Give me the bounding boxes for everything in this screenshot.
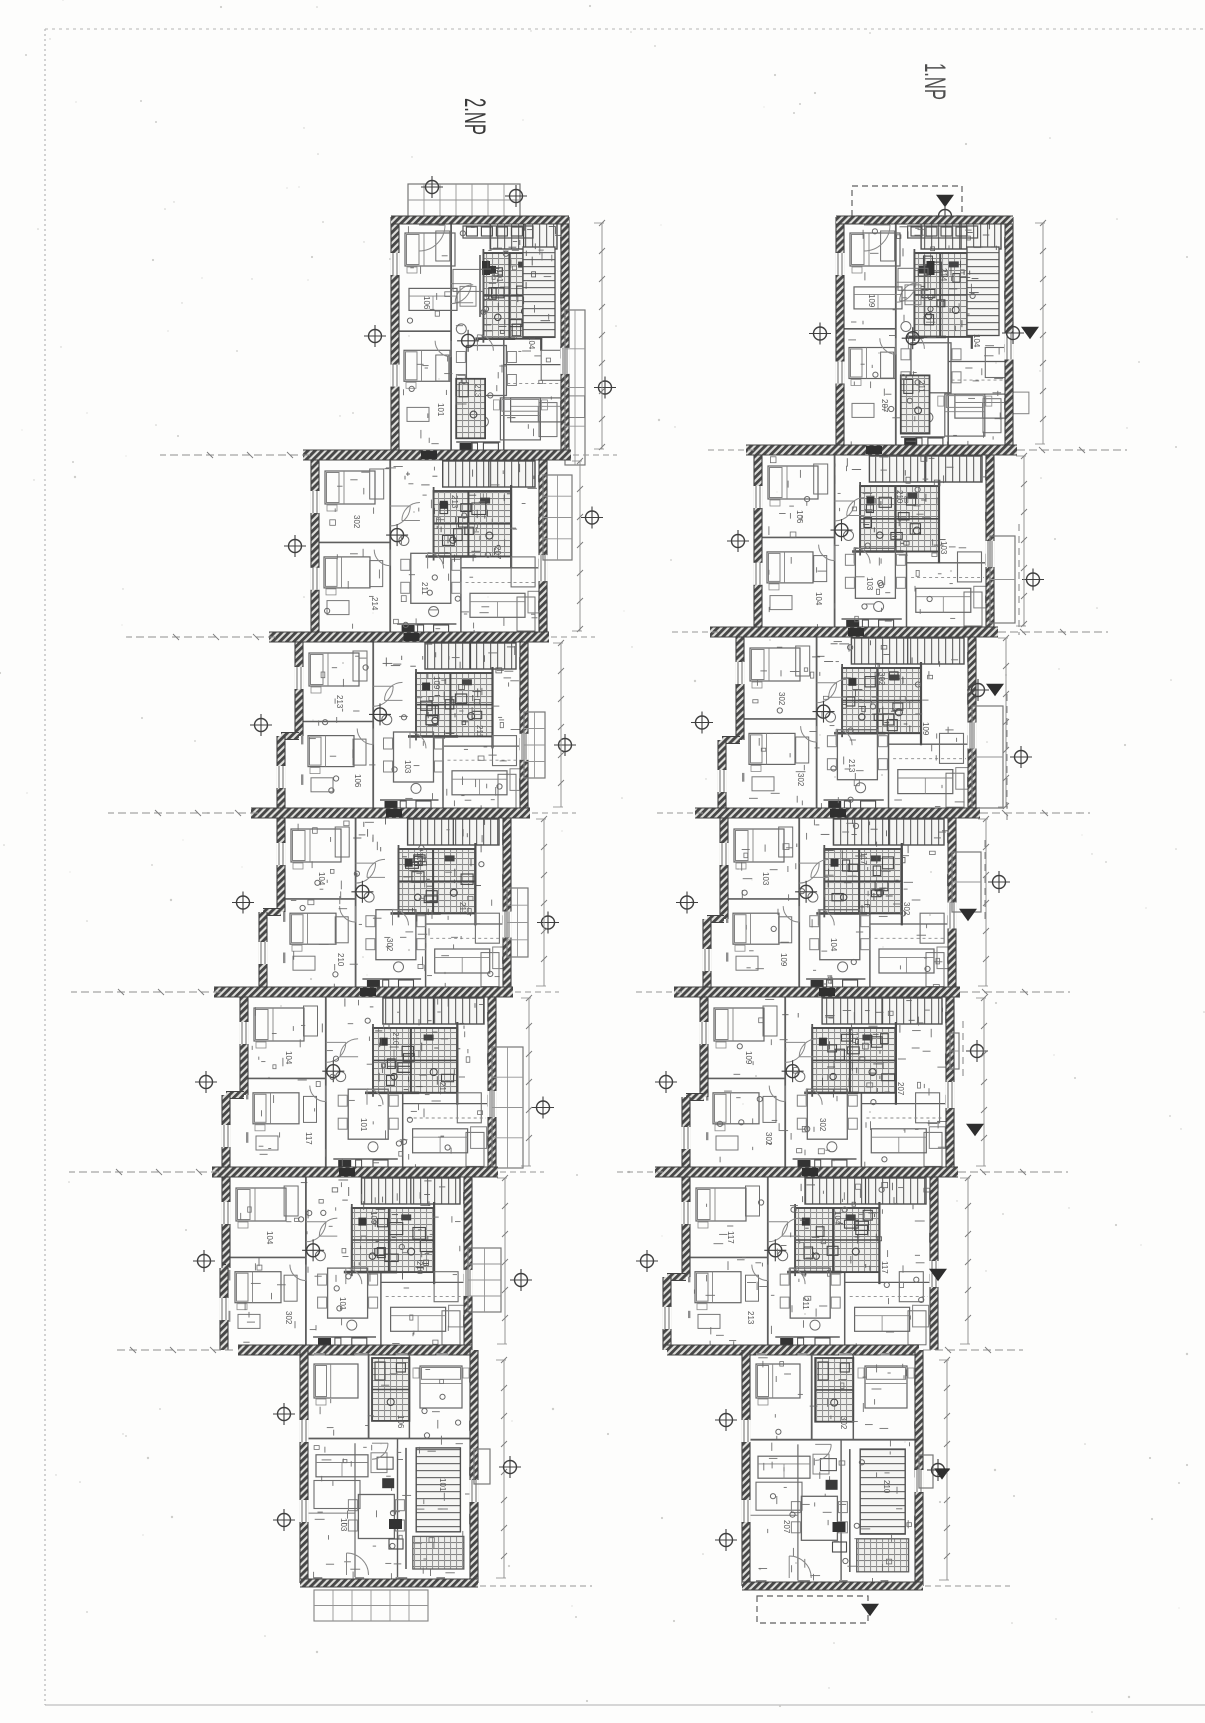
svg-text:117: 117 <box>859 852 868 865</box>
svg-text:103: 103 <box>339 1518 348 1532</box>
svg-text:104: 104 <box>265 1231 274 1245</box>
svg-text:210: 210 <box>882 1480 891 1494</box>
svg-text:302: 302 <box>818 1118 827 1132</box>
svg-text:214: 214 <box>939 268 948 282</box>
svg-text:213: 213 <box>847 759 856 773</box>
svg-text:211: 211 <box>475 725 484 738</box>
svg-text:207: 207 <box>896 1082 905 1096</box>
svg-text:104: 104 <box>527 336 536 350</box>
svg-text:1.NP: 1.NP <box>918 63 951 100</box>
svg-text:103: 103 <box>415 852 424 866</box>
svg-text:210: 210 <box>415 1261 424 1275</box>
svg-text:109: 109 <box>744 1051 753 1065</box>
svg-text:109: 109 <box>867 294 876 308</box>
svg-text:210: 210 <box>895 490 904 504</box>
svg-text:104: 104 <box>814 592 823 606</box>
svg-text:302: 302 <box>839 1416 848 1430</box>
svg-text:210: 210 <box>391 1032 400 1046</box>
svg-text:101: 101 <box>359 1118 368 1132</box>
svg-text:207: 207 <box>493 546 502 560</box>
svg-text:302: 302 <box>385 938 394 952</box>
svg-text:103: 103 <box>403 760 412 774</box>
svg-text:302: 302 <box>284 1311 293 1325</box>
svg-text:104: 104 <box>833 1211 842 1225</box>
svg-text:103: 103 <box>939 541 948 555</box>
svg-text:211: 211 <box>801 1297 810 1310</box>
svg-text:211: 211 <box>458 902 467 915</box>
svg-text:103: 103 <box>865 577 874 591</box>
svg-text:101: 101 <box>436 403 445 417</box>
svg-text:106: 106 <box>422 296 431 310</box>
svg-text:117: 117 <box>726 1231 735 1244</box>
svg-text:109: 109 <box>369 1211 378 1225</box>
svg-text:104: 104 <box>317 872 326 886</box>
svg-text:207: 207 <box>782 1520 791 1534</box>
svg-text:109: 109 <box>921 722 930 736</box>
svg-text:104: 104 <box>284 1051 293 1065</box>
svg-text:106: 106 <box>353 774 362 788</box>
svg-text:214: 214 <box>370 597 379 611</box>
svg-text:213: 213 <box>335 695 344 709</box>
svg-text:117: 117 <box>304 1132 313 1145</box>
svg-text:211: 211 <box>917 380 926 393</box>
svg-text:302: 302 <box>877 672 886 686</box>
svg-text:117: 117 <box>880 1261 889 1274</box>
svg-text:207: 207 <box>880 399 889 413</box>
svg-text:302: 302 <box>352 515 361 529</box>
svg-text:302: 302 <box>764 1132 773 1146</box>
svg-text:106: 106 <box>396 1415 405 1429</box>
svg-text:211: 211 <box>438 1082 447 1095</box>
svg-text:109: 109 <box>432 676 441 690</box>
svg-text:213: 213 <box>473 384 482 398</box>
svg-text:213: 213 <box>450 495 459 509</box>
svg-text:103: 103 <box>761 872 770 886</box>
svg-text:117: 117 <box>850 1032 859 1045</box>
svg-text:101: 101 <box>495 269 504 283</box>
svg-text:302: 302 <box>902 902 911 916</box>
svg-text:302: 302 <box>777 692 786 706</box>
svg-text:213: 213 <box>746 1311 755 1325</box>
svg-text:104: 104 <box>972 334 981 348</box>
svg-text:101: 101 <box>338 1297 347 1311</box>
svg-text:2.NP: 2.NP <box>458 98 491 135</box>
svg-text:104: 104 <box>829 938 838 952</box>
svg-text:106: 106 <box>795 510 804 524</box>
svg-text:210: 210 <box>336 953 345 967</box>
svg-text:302: 302 <box>796 773 805 787</box>
svg-text:101: 101 <box>438 1478 447 1492</box>
svg-text:109: 109 <box>779 953 788 967</box>
